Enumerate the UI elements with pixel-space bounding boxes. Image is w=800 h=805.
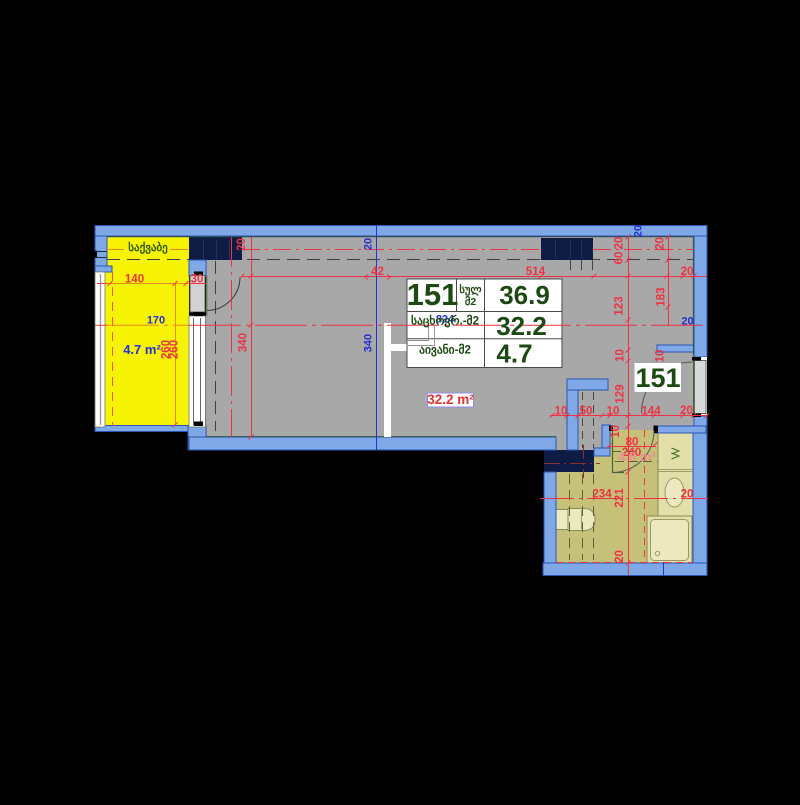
svg-text:123: 123	[614, 296, 626, 315]
svg-text:20: 20	[681, 316, 693, 328]
svg-text:514: 514	[526, 266, 546, 278]
svg-text:20: 20	[614, 237, 626, 250]
svg-text:340: 340	[363, 334, 375, 352]
svg-text:10: 10	[555, 406, 568, 418]
svg-text:10: 10	[610, 425, 622, 438]
svg-text:20: 20	[363, 238, 375, 250]
svg-text:20: 20	[236, 238, 248, 251]
svg-text:30: 30	[191, 274, 204, 286]
svg-text:4.6 m²: 4.6 m²	[618, 449, 656, 464]
svg-text:მ2: მ2	[465, 295, 476, 308]
svg-text:234: 234	[592, 489, 612, 501]
svg-text:20: 20	[614, 550, 626, 563]
svg-text:20: 20	[655, 237, 667, 250]
svg-text:151: 151	[407, 277, 459, 312]
svg-text:42: 42	[371, 266, 384, 278]
svg-text:36.9: 36.9	[499, 280, 550, 310]
svg-text:აივანი-მ2: აივანი-მ2	[419, 343, 471, 358]
svg-text:183: 183	[656, 287, 668, 306]
svg-text:სულ: სულ	[459, 283, 482, 296]
svg-text:4.7: 4.7	[496, 339, 532, 369]
svg-text:საცხოვრ.-მ2: საცხოვრ.-მ2	[411, 314, 479, 329]
svg-text:20: 20	[681, 489, 694, 501]
svg-text:10: 10	[607, 406, 620, 418]
svg-text:129: 129	[615, 384, 627, 403]
svg-text:საქვაბე: საქვაბე	[128, 241, 168, 254]
svg-text:20: 20	[681, 266, 694, 278]
svg-text:151: 151	[635, 363, 680, 393]
svg-text:10: 10	[615, 349, 627, 362]
svg-text:260: 260	[169, 340, 181, 359]
svg-text:32.2: 32.2	[496, 311, 547, 341]
svg-text:32.2 m²: 32.2 m²	[427, 392, 474, 407]
svg-text:20: 20	[680, 405, 693, 417]
svg-text:60: 60	[614, 252, 626, 265]
svg-text:170: 170	[147, 315, 165, 327]
svg-text:20: 20	[633, 225, 645, 237]
svg-text:10: 10	[655, 350, 667, 363]
svg-text:50: 50	[580, 406, 593, 418]
svg-text:4.7 m²: 4.7 m²	[123, 342, 161, 357]
svg-text:221: 221	[614, 488, 626, 508]
svg-text:340: 340	[238, 333, 250, 352]
svg-text:144: 144	[641, 406, 661, 418]
svg-text:140: 140	[125, 274, 144, 286]
